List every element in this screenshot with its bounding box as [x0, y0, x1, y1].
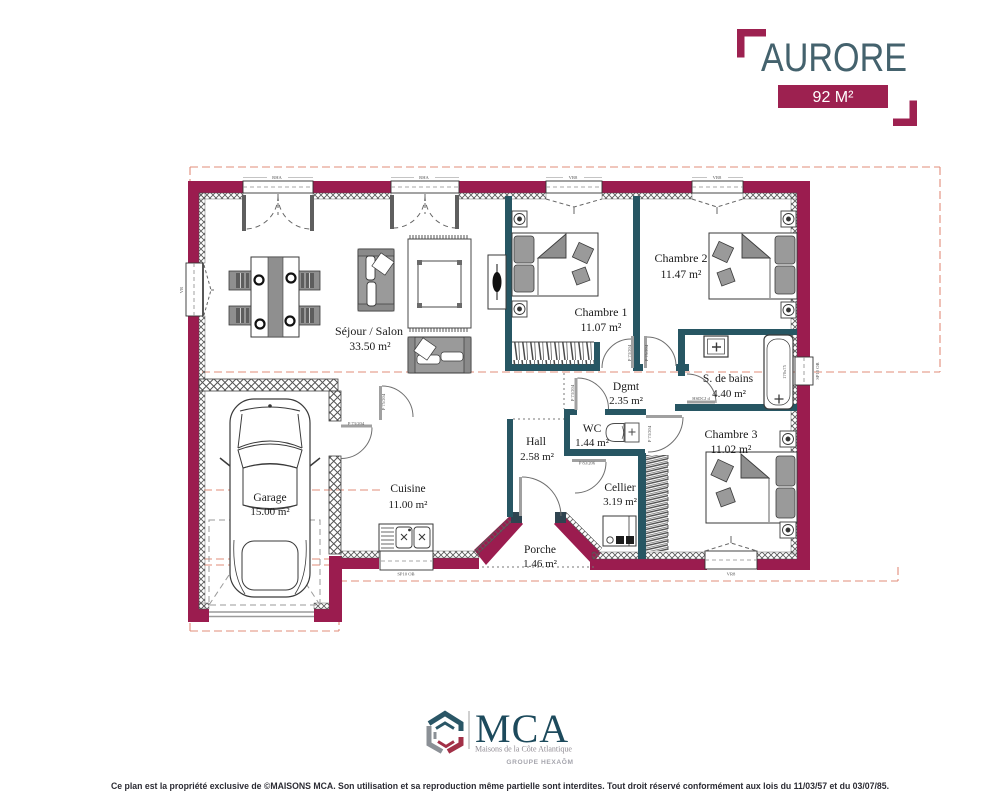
svg-text:VR8: VR8	[727, 572, 736, 577]
svg-text:11.00 m²: 11.00 m²	[389, 499, 429, 511]
svg-text:VR8: VR8	[569, 175, 578, 180]
svg-text:Chambre 2: Chambre 2	[655, 251, 708, 265]
svg-text:Chambre 3: Chambre 3	[705, 427, 758, 441]
svg-text:11.47 m²: 11.47 m²	[661, 269, 702, 281]
svg-text:P 75/204: P 75/204	[381, 393, 386, 410]
svg-text:Cellier: Cellier	[604, 482, 635, 494]
svg-text:AURORE: AURORE	[761, 36, 907, 80]
svg-text:170x75: 170x75	[782, 364, 787, 378]
svg-text:Porche: Porche	[524, 544, 556, 556]
svg-text:Garage: Garage	[253, 492, 286, 504]
svg-text:HSDCJ d: HSDCJ d	[692, 396, 710, 401]
svg-text:4.40 m²: 4.40 m²	[712, 388, 747, 400]
svg-text:33.50 m²: 33.50 m²	[349, 341, 391, 353]
svg-text:92 M²: 92 M²	[813, 89, 855, 106]
svg-text:3.19 m²: 3.19 m²	[603, 496, 638, 508]
svg-text:1.46 m²: 1.46 m²	[523, 558, 558, 570]
svg-text:15.00 m²: 15.00 m²	[250, 506, 290, 518]
svg-text:RHA: RHA	[272, 175, 282, 180]
svg-text:SP10 OB: SP10 OB	[397, 572, 414, 577]
svg-text:P 83/206: P 83/206	[579, 461, 596, 466]
svg-text:11.02 m²: 11.02 m²	[711, 444, 752, 456]
svg-text:GROUPE HEXAÔM: GROUPE HEXAÔM	[506, 757, 573, 766]
svg-text:SP10 OB: SP10 OB	[815, 362, 820, 379]
svg-text:S. de bains: S. de bains	[703, 373, 754, 385]
svg-text:VR8: VR8	[713, 175, 722, 180]
svg-text:Maisons de la Côte Atlantique: Maisons de la Côte Atlantique	[475, 745, 572, 754]
svg-text:P 73/204: P 73/204	[647, 425, 652, 442]
svg-text:RHA: RHA	[419, 175, 429, 180]
svg-text:Hall: Hall	[526, 436, 546, 448]
svg-text:P 73/204: P 73/204	[627, 344, 632, 361]
svg-text:P 73/204: P 73/204	[348, 421, 365, 426]
svg-text:P 73/204: P 73/204	[570, 384, 575, 401]
svg-text:Chambre 1: Chambre 1	[575, 305, 628, 319]
svg-text:11.07 m²: 11.07 m²	[581, 322, 622, 334]
svg-text:1.44 m²: 1.44 m²	[575, 437, 610, 449]
svg-text:Séjour / Salon: Séjour / Salon	[335, 324, 403, 338]
svg-text:2.58 m²: 2.58 m²	[520, 451, 555, 463]
svg-text:VR: VR	[179, 286, 184, 293]
svg-text:Dgmt: Dgmt	[613, 381, 640, 393]
svg-text:Ce plan est la propriété exclu: Ce plan est la propriété exclusive de ©M…	[111, 781, 889, 791]
svg-text:2.35 m²: 2.35 m²	[609, 395, 644, 407]
svg-text:Cuisine: Cuisine	[390, 483, 425, 495]
svg-text:P 75/204: P 75/204	[644, 344, 649, 361]
svg-text:WC: WC	[583, 423, 602, 435]
